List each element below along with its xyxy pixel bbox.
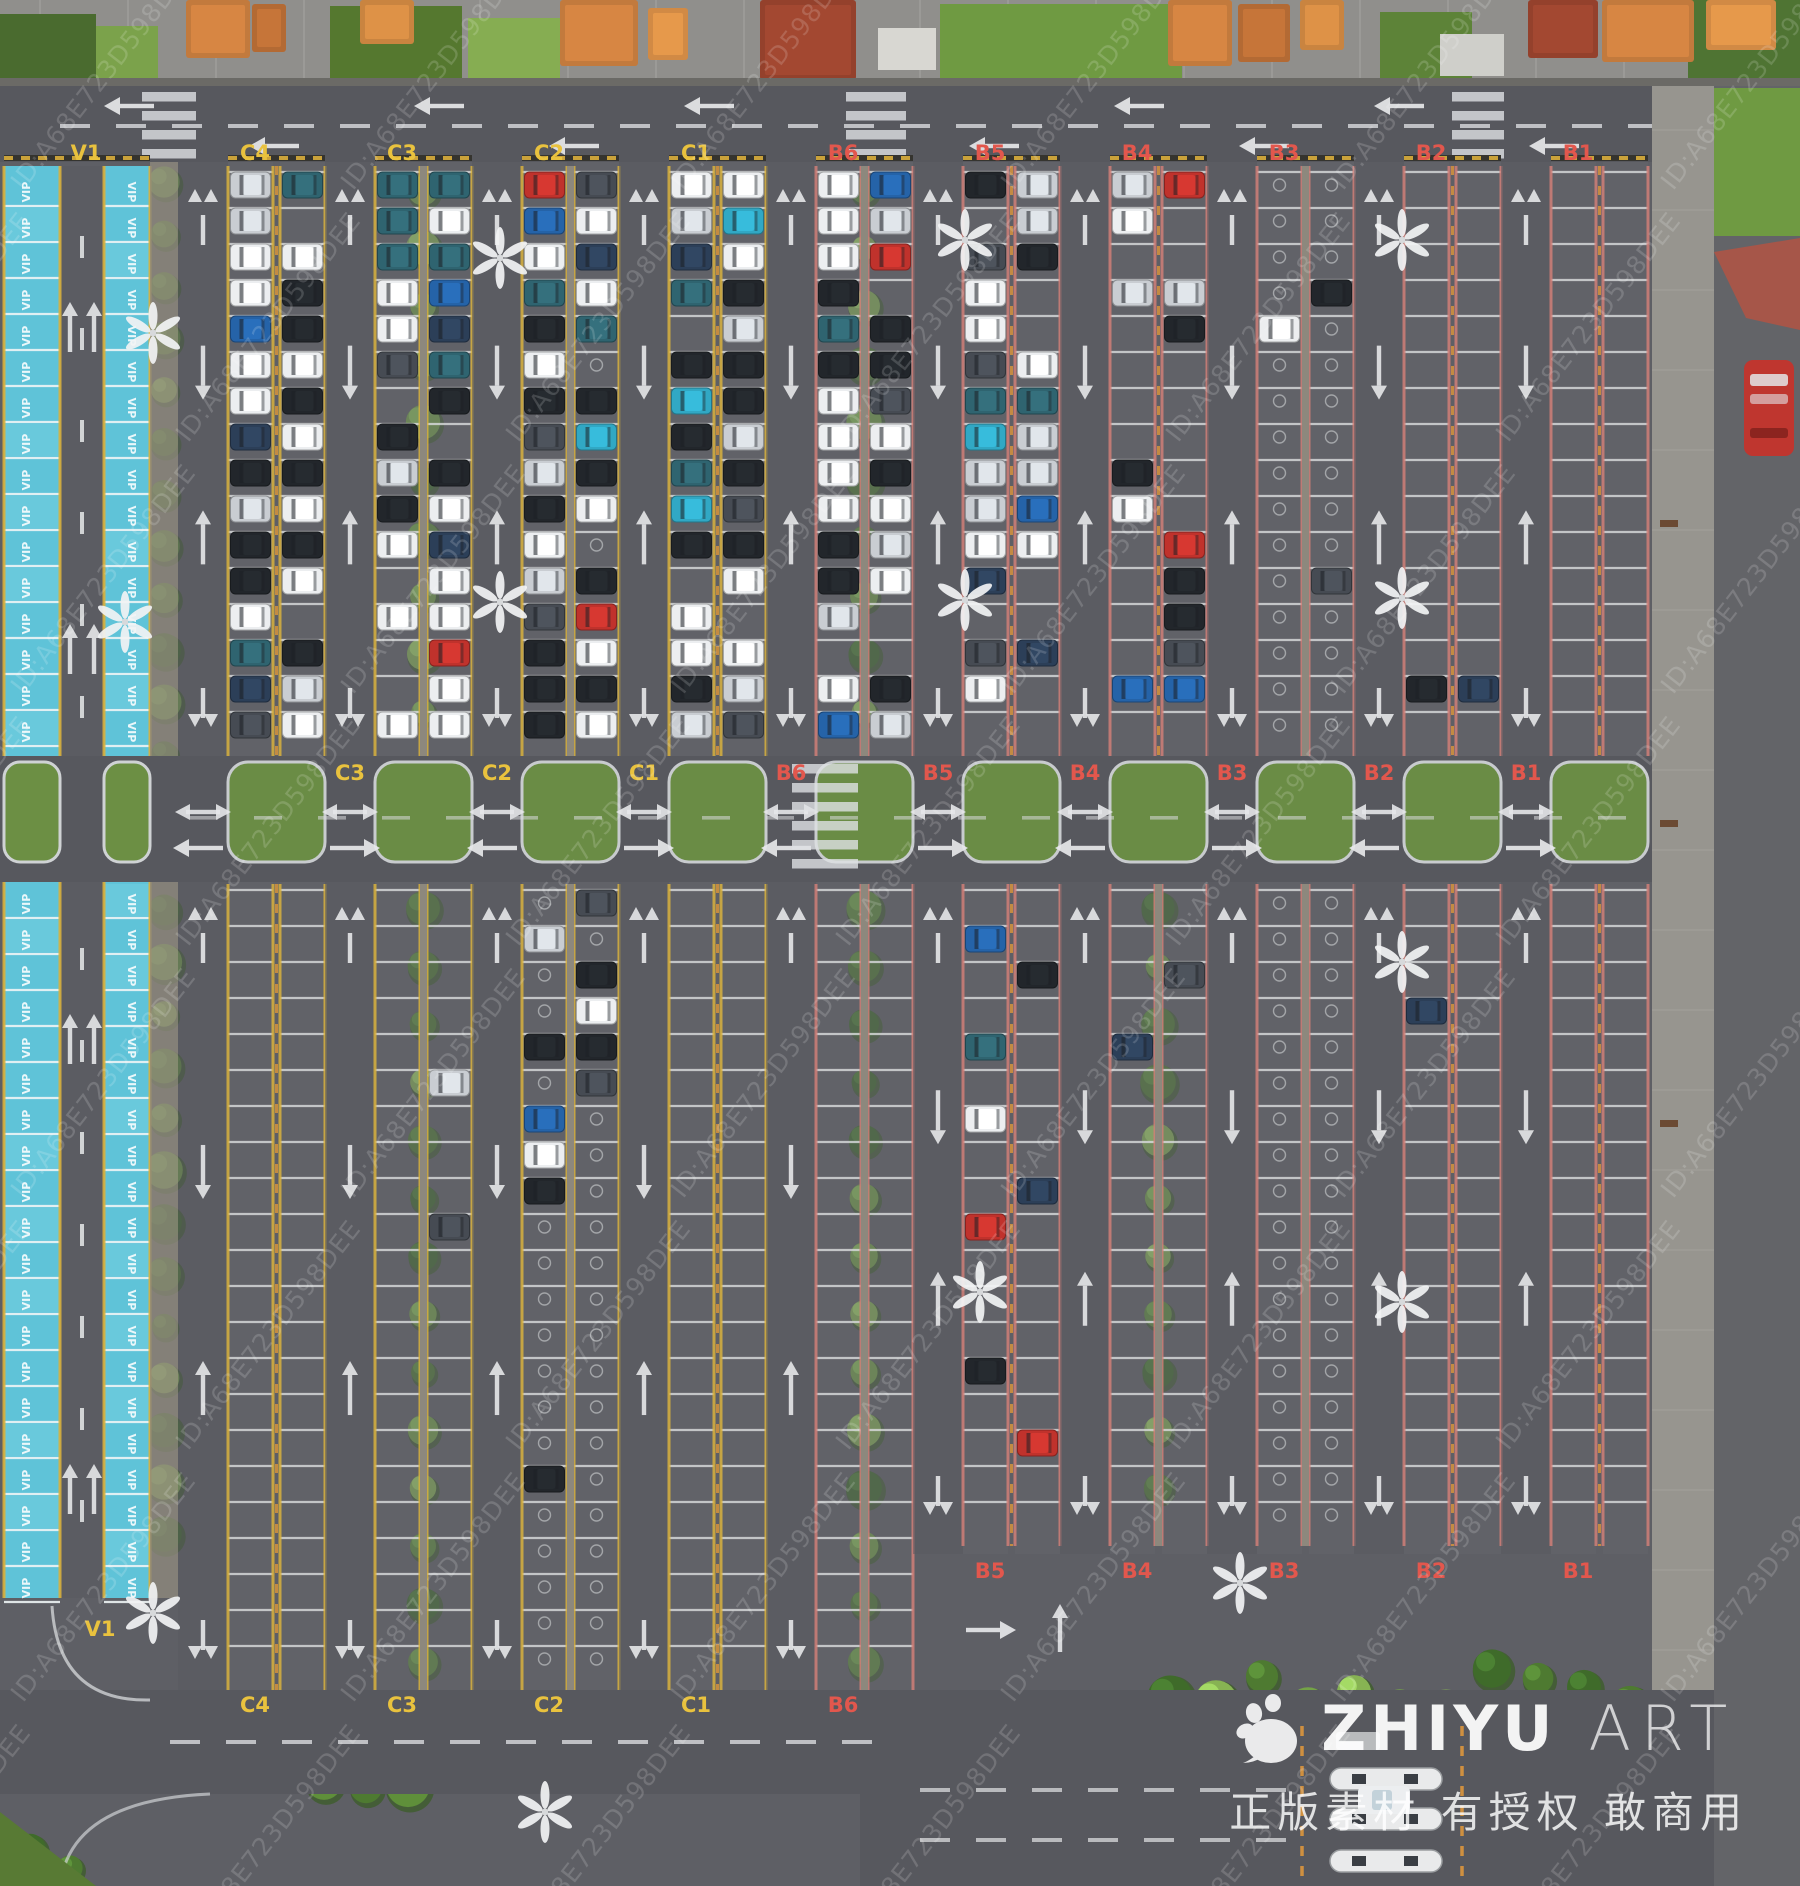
- car: [283, 676, 323, 702]
- car: [525, 568, 565, 594]
- svg-text:VIP: VIP: [20, 290, 33, 311]
- zone-label: C2: [534, 141, 564, 165]
- aerial-parking-lot-photo: VIPVIPVIPVIPVIPVIPVIPVIPVIPVIPVIPVIPVIPV…: [0, 0, 1800, 1886]
- zone-label: B6: [776, 761, 807, 785]
- svg-text:VIP: VIP: [20, 434, 33, 455]
- car: [378, 460, 418, 486]
- car: [430, 604, 470, 630]
- zone-label: C3: [335, 761, 365, 785]
- car: [966, 316, 1006, 342]
- car: [966, 1106, 1006, 1132]
- car: [1165, 172, 1205, 198]
- svg-text:VIP: VIP: [125, 398, 138, 419]
- svg-text:VIP: VIP: [20, 1038, 33, 1059]
- car: [430, 172, 470, 198]
- car: [525, 172, 565, 198]
- car: [819, 280, 859, 306]
- car: [525, 1466, 565, 1492]
- svg-text:VIP: VIP: [125, 930, 138, 951]
- svg-text:VIP: VIP: [20, 470, 33, 491]
- car: [966, 424, 1006, 450]
- car: [1165, 532, 1205, 558]
- car: [819, 532, 859, 558]
- svg-text:VIP: VIP: [125, 1434, 138, 1455]
- car: [577, 1034, 617, 1060]
- car: [378, 496, 418, 522]
- svg-text:VIP: VIP: [125, 434, 138, 455]
- car: [819, 712, 859, 738]
- svg-text:VIP: VIP: [125, 1398, 138, 1419]
- car: [819, 604, 859, 630]
- car: [1113, 280, 1153, 306]
- car: [1165, 640, 1205, 666]
- car: [430, 676, 470, 702]
- svg-text:VIP: VIP: [20, 578, 33, 599]
- car: [231, 388, 271, 414]
- svg-text:VIP: VIP: [20, 1398, 33, 1419]
- car: [1113, 208, 1153, 234]
- car: [1018, 962, 1058, 988]
- car: [672, 352, 712, 378]
- car: [724, 676, 764, 702]
- car: [672, 424, 712, 450]
- car: [672, 532, 712, 558]
- svg-text:VIP: VIP: [20, 1254, 33, 1275]
- svg-text:VIP: VIP: [20, 1326, 33, 1347]
- svg-text:VIP: VIP: [20, 614, 33, 635]
- car: [378, 280, 418, 306]
- car: [871, 568, 911, 594]
- car: [1018, 496, 1058, 522]
- top-plaza: [0, 0, 1800, 87]
- svg-text:VIP: VIP: [20, 1470, 33, 1491]
- car: [525, 496, 565, 522]
- car: [430, 316, 470, 342]
- svg-text:VIP: VIP: [125, 1578, 138, 1599]
- zone-label: B5: [975, 141, 1006, 165]
- car: [672, 388, 712, 414]
- car: [525, 208, 565, 234]
- svg-text:VIP: VIP: [20, 894, 33, 915]
- car: [871, 676, 911, 702]
- car: [430, 352, 470, 378]
- red-bus: [1744, 360, 1794, 456]
- car: [430, 388, 470, 414]
- car: [724, 208, 764, 234]
- car: [1018, 388, 1058, 414]
- car: [525, 676, 565, 702]
- car: [430, 460, 470, 486]
- car: [283, 532, 323, 558]
- zone-label: B1: [1563, 1559, 1594, 1583]
- car: [966, 532, 1006, 558]
- svg-text:VIP: VIP: [125, 722, 138, 743]
- car: [724, 712, 764, 738]
- car: [1018, 424, 1058, 450]
- car: [378, 244, 418, 270]
- zone-label: B6: [828, 1693, 859, 1717]
- car: [1165, 280, 1205, 306]
- car: [672, 460, 712, 486]
- car: [724, 352, 764, 378]
- car: [525, 244, 565, 270]
- car: [231, 676, 271, 702]
- svg-text:VIP: VIP: [20, 326, 33, 347]
- car: [871, 532, 911, 558]
- car: [577, 998, 617, 1024]
- zone-label: B1: [1563, 141, 1594, 165]
- svg-text:VIP: VIP: [20, 1542, 33, 1563]
- car: [1165, 604, 1205, 630]
- car: [577, 208, 617, 234]
- car: [966, 388, 1006, 414]
- car: [871, 496, 911, 522]
- car: [231, 640, 271, 666]
- svg-text:VIP: VIP: [125, 1146, 138, 1167]
- car: [724, 460, 764, 486]
- car: [231, 532, 271, 558]
- zone-label: C3: [387, 1693, 417, 1717]
- car: [430, 244, 470, 270]
- car: [724, 496, 764, 522]
- zone-label: C2: [482, 761, 512, 785]
- car: [577, 172, 617, 198]
- zone-label: B2: [1364, 761, 1395, 785]
- car: [871, 460, 911, 486]
- svg-text:VIP: VIP: [20, 1002, 33, 1023]
- car: [378, 172, 418, 198]
- car: [1165, 676, 1205, 702]
- car: [819, 316, 859, 342]
- svg-text:VIP: VIP: [20, 542, 33, 563]
- svg-text:VIP: VIP: [125, 1182, 138, 1203]
- car: [283, 352, 323, 378]
- car: [525, 604, 565, 630]
- car: [525, 640, 565, 666]
- svg-text:VIP: VIP: [20, 1578, 33, 1599]
- svg-text:VIP: VIP: [125, 1218, 138, 1239]
- car: [283, 424, 323, 450]
- car: [525, 316, 565, 342]
- svg-text:VIP: VIP: [20, 1362, 33, 1383]
- zone-label: C4: [240, 141, 270, 165]
- scene-canvas: VIPVIPVIPVIPVIPVIPVIPVIPVIPVIPVIPVIPVIPV…: [0, 0, 1800, 1886]
- car: [819, 208, 859, 234]
- car: [819, 244, 859, 270]
- car: [1165, 568, 1205, 594]
- car: [724, 172, 764, 198]
- car: [1459, 676, 1499, 702]
- car: [1165, 316, 1205, 342]
- car: [966, 926, 1006, 952]
- svg-text:VIP: VIP: [20, 1434, 33, 1455]
- zone-label: B3: [1269, 141, 1300, 165]
- car: [1407, 998, 1447, 1024]
- car: [231, 244, 271, 270]
- svg-text:VIP: VIP: [125, 362, 138, 383]
- svg-text:VIP: VIP: [20, 1074, 33, 1095]
- car: [525, 460, 565, 486]
- car: [966, 1034, 1006, 1060]
- svg-text:VIP: VIP: [125, 1074, 138, 1095]
- car: [525, 1034, 565, 1060]
- car: [577, 712, 617, 738]
- car: [1113, 460, 1153, 486]
- car: [430, 640, 470, 666]
- car: [577, 604, 617, 630]
- svg-text:VIP: VIP: [20, 362, 33, 383]
- svg-text:VIP: VIP: [20, 930, 33, 951]
- car: [577, 244, 617, 270]
- car: [1018, 244, 1058, 270]
- car: [525, 532, 565, 558]
- car: [283, 640, 323, 666]
- car: [231, 496, 271, 522]
- car: [1113, 676, 1153, 702]
- svg-text:VIP: VIP: [20, 254, 33, 275]
- car: [1018, 460, 1058, 486]
- car: [378, 208, 418, 234]
- car: [231, 604, 271, 630]
- car: [724, 280, 764, 306]
- svg-text:VIP: VIP: [125, 686, 138, 707]
- zone-label: B1: [1511, 761, 1542, 785]
- svg-text:VIP: VIP: [125, 290, 138, 311]
- zone-label: B6: [828, 141, 859, 165]
- car: [871, 424, 911, 450]
- car: [231, 172, 271, 198]
- zone-label: B3: [1217, 761, 1248, 785]
- car: [819, 568, 859, 594]
- svg-text:VIP: VIP: [125, 894, 138, 915]
- car: [283, 496, 323, 522]
- car: [430, 712, 470, 738]
- car: [871, 244, 911, 270]
- svg-text:VIP: VIP: [125, 218, 138, 239]
- car: [577, 640, 617, 666]
- svg-text:VIP: VIP: [125, 254, 138, 275]
- car: [871, 172, 911, 198]
- car: [966, 496, 1006, 522]
- car: [283, 568, 323, 594]
- zone-label: B3: [1269, 1559, 1300, 1583]
- car: [378, 352, 418, 378]
- svg-text:VIP: VIP: [20, 398, 33, 419]
- car: [231, 208, 271, 234]
- car: [283, 172, 323, 198]
- zone-label: B5: [975, 1559, 1006, 1583]
- car: [430, 280, 470, 306]
- zone-label: B2: [1416, 141, 1447, 165]
- zone-label: V1: [71, 141, 102, 165]
- moving-car: [1358, 1786, 1410, 1814]
- car: [871, 712, 911, 738]
- car: [577, 568, 617, 594]
- car: [577, 962, 617, 988]
- car: [819, 172, 859, 198]
- car: [966, 460, 1006, 486]
- svg-text:VIP: VIP: [20, 506, 33, 527]
- svg-text:VIP: VIP: [20, 1290, 33, 1311]
- car: [525, 1142, 565, 1168]
- car: [525, 1106, 565, 1132]
- car: [724, 244, 764, 270]
- car: [871, 208, 911, 234]
- car: [283, 712, 323, 738]
- car: [966, 1358, 1006, 1384]
- svg-text:VIP: VIP: [125, 1470, 138, 1491]
- car: [378, 316, 418, 342]
- car: [819, 676, 859, 702]
- svg-text:VIP: VIP: [125, 182, 138, 203]
- car: [283, 460, 323, 486]
- svg-text:VIP: VIP: [20, 1110, 33, 1131]
- car: [231, 424, 271, 450]
- car: [577, 676, 617, 702]
- car: [378, 424, 418, 450]
- car: [1407, 676, 1447, 702]
- svg-text:VIP: VIP: [125, 470, 138, 491]
- car: [525, 280, 565, 306]
- car: [724, 316, 764, 342]
- car: [1018, 352, 1058, 378]
- car: [1018, 208, 1058, 234]
- car: [231, 460, 271, 486]
- svg-text:VIP: VIP: [125, 1326, 138, 1347]
- zone-label: C4: [240, 1693, 270, 1717]
- car: [231, 280, 271, 306]
- car: [672, 604, 712, 630]
- car: [577, 460, 617, 486]
- car: [525, 1178, 565, 1204]
- car: [430, 1214, 470, 1240]
- car: [1312, 280, 1352, 306]
- car: [378, 712, 418, 738]
- car: [724, 532, 764, 558]
- car: [672, 280, 712, 306]
- car: [283, 388, 323, 414]
- zone-label: C2: [534, 1693, 564, 1717]
- svg-text:VIP: VIP: [125, 1110, 138, 1131]
- car: [577, 890, 617, 916]
- car: [1113, 172, 1153, 198]
- car: [430, 208, 470, 234]
- car: [819, 352, 859, 378]
- svg-text:VIP: VIP: [125, 1290, 138, 1311]
- car: [525, 712, 565, 738]
- svg-text:VIP: VIP: [125, 1362, 138, 1383]
- car: [1018, 532, 1058, 558]
- car: [577, 424, 617, 450]
- car: [966, 352, 1006, 378]
- svg-text:VIP: VIP: [125, 1254, 138, 1275]
- car: [378, 532, 418, 558]
- svg-text:VIP: VIP: [125, 650, 138, 671]
- car: [231, 712, 271, 738]
- zone-label: B4: [1122, 141, 1153, 165]
- car: [1018, 1430, 1058, 1456]
- car: [577, 388, 617, 414]
- zone-label: B4: [1070, 761, 1101, 785]
- svg-text:VIP: VIP: [20, 966, 33, 987]
- car: [577, 496, 617, 522]
- car: [724, 388, 764, 414]
- car: [231, 568, 271, 594]
- car: [577, 1070, 617, 1096]
- car: [724, 424, 764, 450]
- car: [672, 496, 712, 522]
- svg-text:VIP: VIP: [125, 966, 138, 987]
- svg-text:VIP: VIP: [20, 1506, 33, 1527]
- car: [1312, 568, 1352, 594]
- car: [966, 640, 1006, 666]
